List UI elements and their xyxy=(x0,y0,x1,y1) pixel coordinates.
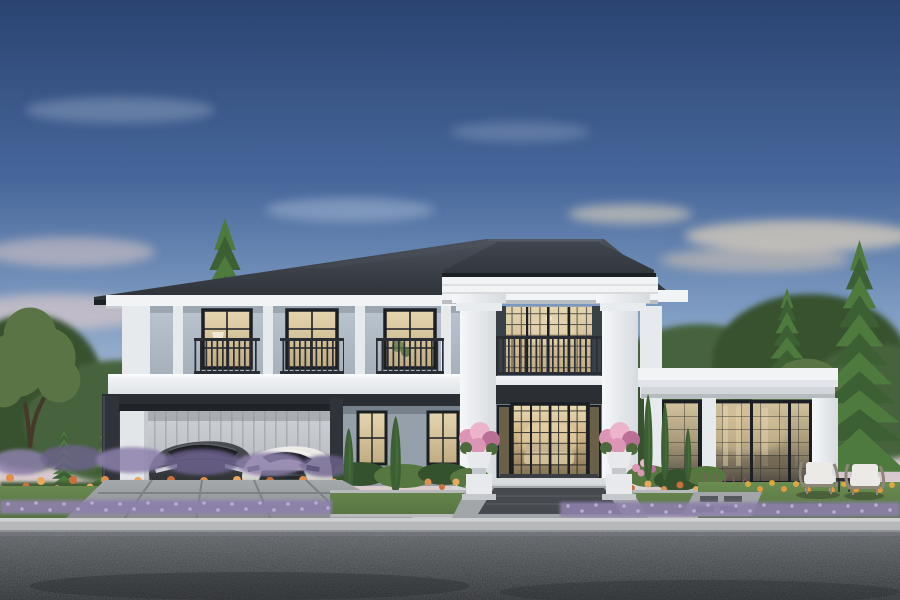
lavender-strip-right xyxy=(560,502,900,517)
ground-window-1 xyxy=(358,412,386,464)
portico-balcony-railing xyxy=(494,336,604,376)
entrance xyxy=(496,404,602,480)
entrance-french-doors xyxy=(512,404,588,478)
ground-window-2 xyxy=(428,412,458,464)
house-exterior-rendering xyxy=(0,0,900,600)
balcony-railings xyxy=(194,338,444,375)
curb xyxy=(0,518,900,533)
floor-slab-band xyxy=(108,374,462,394)
portico-upper-bay xyxy=(486,306,612,404)
street xyxy=(0,532,900,600)
lavender-strip-left xyxy=(0,500,332,514)
